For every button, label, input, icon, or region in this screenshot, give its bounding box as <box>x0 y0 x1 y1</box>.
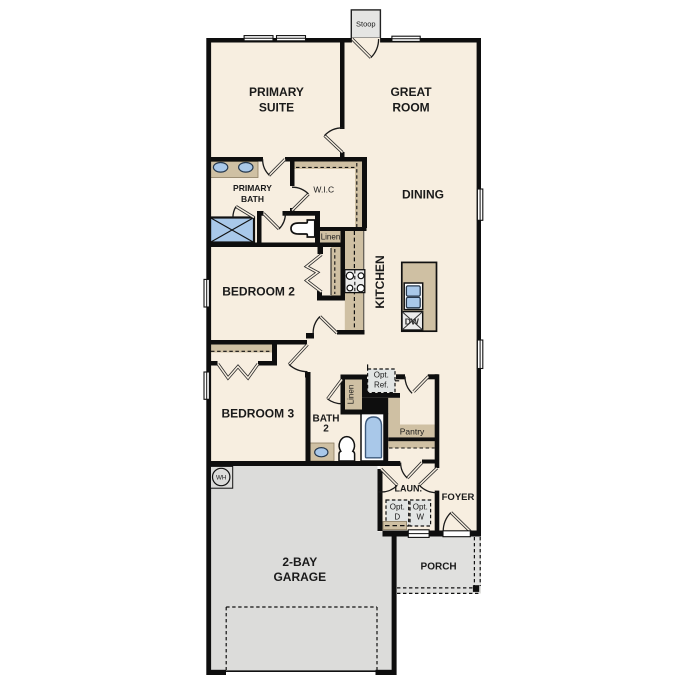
svg-text:GREAT: GREAT <box>390 85 432 99</box>
svg-text:GARAGE: GARAGE <box>273 570 326 584</box>
svg-text:BEDROOM 3: BEDROOM 3 <box>221 407 294 421</box>
svg-text:SUITE: SUITE <box>259 100 294 114</box>
svg-text:Opt.: Opt. <box>413 503 428 512</box>
svg-text:2-BAY: 2-BAY <box>282 555 317 569</box>
svg-text:BATH: BATH <box>241 194 264 204</box>
svg-text:ROOM: ROOM <box>392 100 429 114</box>
svg-text:FOYER: FOYER <box>442 492 475 503</box>
svg-text:KITCHEN: KITCHEN <box>373 255 387 308</box>
svg-text:PORCH: PORCH <box>421 562 457 573</box>
svg-text:WH: WH <box>216 474 227 481</box>
svg-text:W.I.C: W.I.C <box>313 185 334 195</box>
svg-text:Ref.: Ref. <box>374 381 389 390</box>
svg-text:DINING: DINING <box>402 187 444 201</box>
svg-text:DW: DW <box>405 316 420 326</box>
svg-text:BEDROOM 2: BEDROOM 2 <box>222 285 295 299</box>
svg-text:Opt.: Opt. <box>374 371 389 380</box>
svg-text:W: W <box>417 513 425 522</box>
svg-text:LAUN.: LAUN. <box>395 484 423 494</box>
svg-text:Stoop: Stoop <box>356 19 376 28</box>
svg-text:2: 2 <box>323 424 329 435</box>
svg-text:PRIMARY: PRIMARY <box>249 85 304 99</box>
svg-text:D: D <box>394 513 400 522</box>
svg-text:Pantry: Pantry <box>400 426 425 436</box>
svg-text:Opt.: Opt. <box>390 503 405 512</box>
svg-text:Linen: Linen <box>347 385 356 405</box>
svg-text:Linen: Linen <box>321 233 341 242</box>
svg-text:PRIMARY: PRIMARY <box>233 183 272 193</box>
